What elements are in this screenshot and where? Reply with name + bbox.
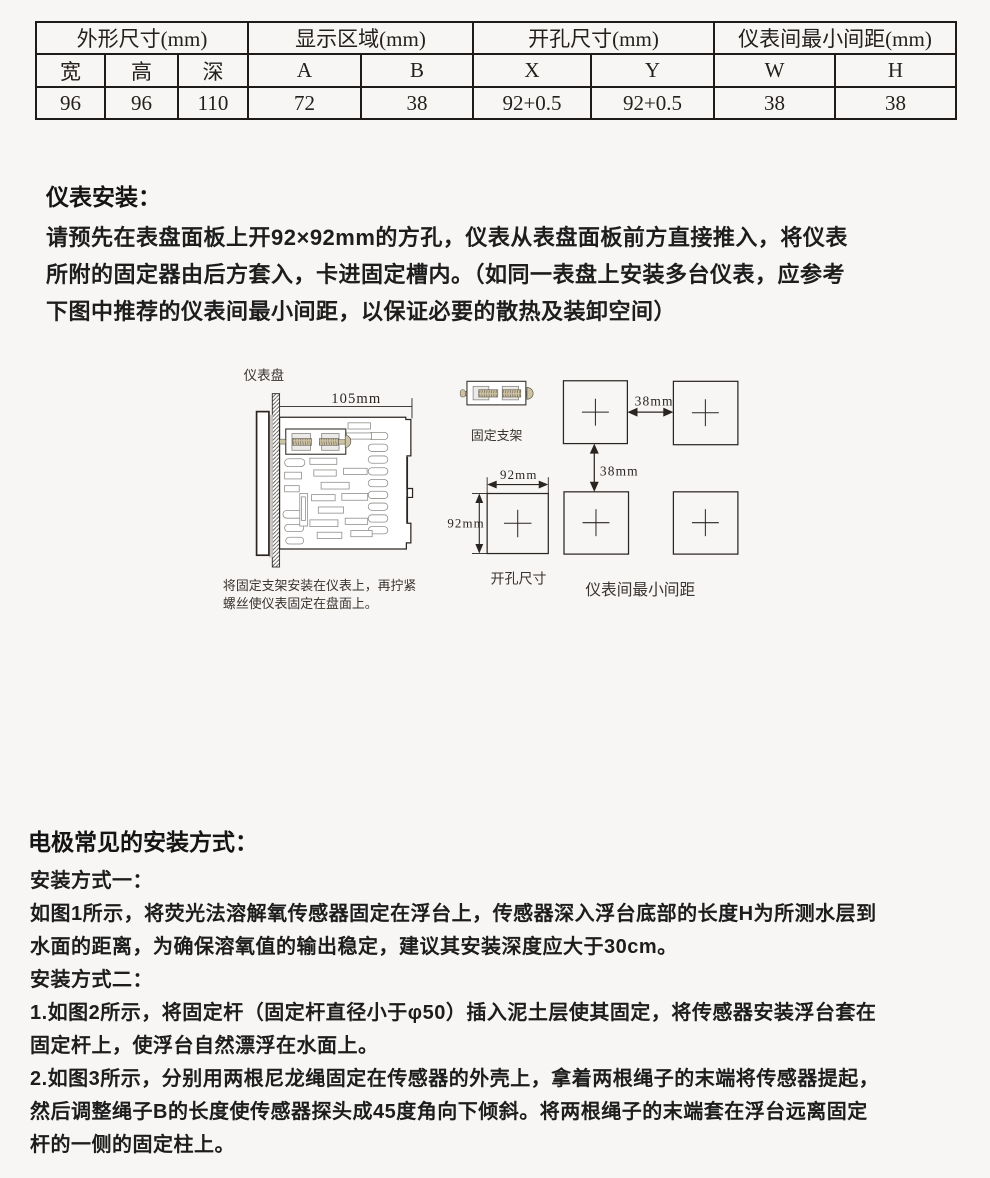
method-one-label: 安装方式一：	[30, 864, 153, 893]
screw-thread	[479, 390, 498, 397]
table-group-header-row: 外形尺寸(mm) 显示区域(mm) 开孔尺寸(mm) 仪表间最小间距(mm)	[36, 22, 956, 54]
group-header-display-area: 显示区域(mm)	[248, 22, 473, 54]
instrument-install-heading: 仪表安装：	[46, 178, 161, 212]
arrow-38-vertical	[590, 444, 599, 492]
col-header-height: 高	[105, 54, 178, 87]
table-col-header-row: 宽 高 深 A B X Y W H	[36, 54, 956, 87]
dim-92-height-label: 92mm	[447, 517, 484, 531]
method-one-line-2: 水面的距离，为确保溶氧值的输出稳定，建议其安装深度应大于30cm。	[30, 930, 678, 959]
col-header-h: H	[835, 54, 956, 87]
cutout-dimensions-label: 开孔尺寸	[491, 571, 547, 587]
table-value-row: 96 96 110 72 38 92+0.5 92+0.5 38 38	[36, 87, 956, 119]
spec-table: 外形尺寸(mm) 显示区域(mm) 开孔尺寸(mm) 仪表间最小间距(mm) 宽…	[35, 21, 957, 120]
value-y: 92+0.5	[591, 87, 714, 119]
panel-label: 仪表盘	[244, 367, 284, 383]
method-one-line-1: 如图1所示，将荧光法溶解氧传感器固定在浮台上，传感器深入浮台底部的长度H为所测水…	[30, 897, 877, 926]
electrode-heading: 电极常见的安装方式：	[28, 823, 258, 857]
value-height: 96	[105, 87, 178, 119]
install-paragraph-line-1: 请预先在表盘面板上开92×92mm的方孔，仪表从表盘面板前方直接推入，将仪表	[46, 220, 848, 252]
install-paragraph-line-3: 下图中推荐的仪表间最小间距，以保证必要的散热及装卸空间）	[46, 294, 676, 326]
value-depth: 110	[178, 87, 248, 119]
mounting-bracket	[280, 429, 351, 454]
fixing-bracket-label: 固定支架	[471, 429, 523, 443]
method-two-line-4: 然后调整绳子B的长度使传感器探头成45度角向下倾斜。将两根绳子的末端套在浮台远离…	[30, 1095, 868, 1124]
method-two-line-3: 2.如图3所示，分别用两根尼龙绳固定在传感器的外壳上，拿着两根绳子的末端将传感器…	[30, 1062, 879, 1091]
bracket-caption-line-2: 螺丝使仪表固定在盘面上。	[223, 596, 378, 611]
method-two-label: 安装方式二：	[30, 963, 153, 992]
col-header-a: A	[248, 54, 361, 87]
bracket-caption-line-1: 将固定支架安装在仪表上，再拧紧	[223, 579, 416, 593]
dim-92-width-label: 92mm	[500, 468, 537, 482]
screw-thread	[319, 439, 338, 446]
value-h: 38	[835, 87, 956, 119]
install-paragraph-line-2: 所附的固定器由后方套入，卡进固定槽内。（如同一表盘上安装多台仪表，应参考	[46, 257, 845, 289]
col-header-width: 宽	[36, 54, 105, 87]
value-w: 38	[714, 87, 835, 119]
screw-head	[527, 387, 533, 399]
screw-tip	[460, 390, 465, 397]
group-header-cutout: 开孔尺寸(mm)	[473, 22, 714, 54]
arrow-38-horizontal	[627, 408, 673, 417]
col-header-x: X	[473, 54, 591, 87]
value-width: 96	[36, 87, 105, 119]
col-header-depth: 深	[178, 54, 248, 87]
instrument-bezel	[257, 412, 269, 556]
value-x: 92+0.5	[473, 87, 591, 119]
manual-page: { "spec_table": { "groups": [ {"label": …	[0, 0, 990, 1178]
value-b: 38	[361, 87, 473, 119]
method-two-line-5: 杆的一侧的固定柱上。	[30, 1128, 235, 1157]
cutout-square	[487, 494, 548, 554]
method-two-line-1: 1.如图2所示，将固定杆（固定杆直径小于φ50）插入泥土层使其固定，将传感器安装…	[30, 996, 876, 1025]
group-header-dimensions: 外形尺寸(mm)	[36, 22, 248, 54]
dim-105-label: 105mm	[331, 391, 381, 407]
group-header-spacing: 仪表间最小间距(mm)	[714, 22, 956, 54]
installation-diagram: 仪表盘 105mm	[0, 360, 990, 820]
dim-38-horizontal-label: 38mm	[635, 393, 674, 408]
hatch-wall	[272, 394, 279, 567]
screw-tip	[280, 439, 286, 444]
fixing-bracket-illustration	[460, 381, 533, 405]
dim-38-vertical-label: 38mm	[600, 464, 639, 479]
value-a: 72	[248, 87, 361, 119]
min-spacing-label: 仪表间最小间距	[585, 581, 695, 599]
screw-thread	[292, 439, 311, 446]
col-header-y: Y	[591, 54, 714, 87]
screw-thread	[502, 390, 521, 397]
method-two-line-2: 固定杆上，使浮台自然漂浮在水面上。	[30, 1029, 379, 1058]
col-header-b: B	[361, 54, 473, 87]
col-header-w: W	[714, 54, 835, 87]
screw-shaft	[338, 440, 345, 444]
